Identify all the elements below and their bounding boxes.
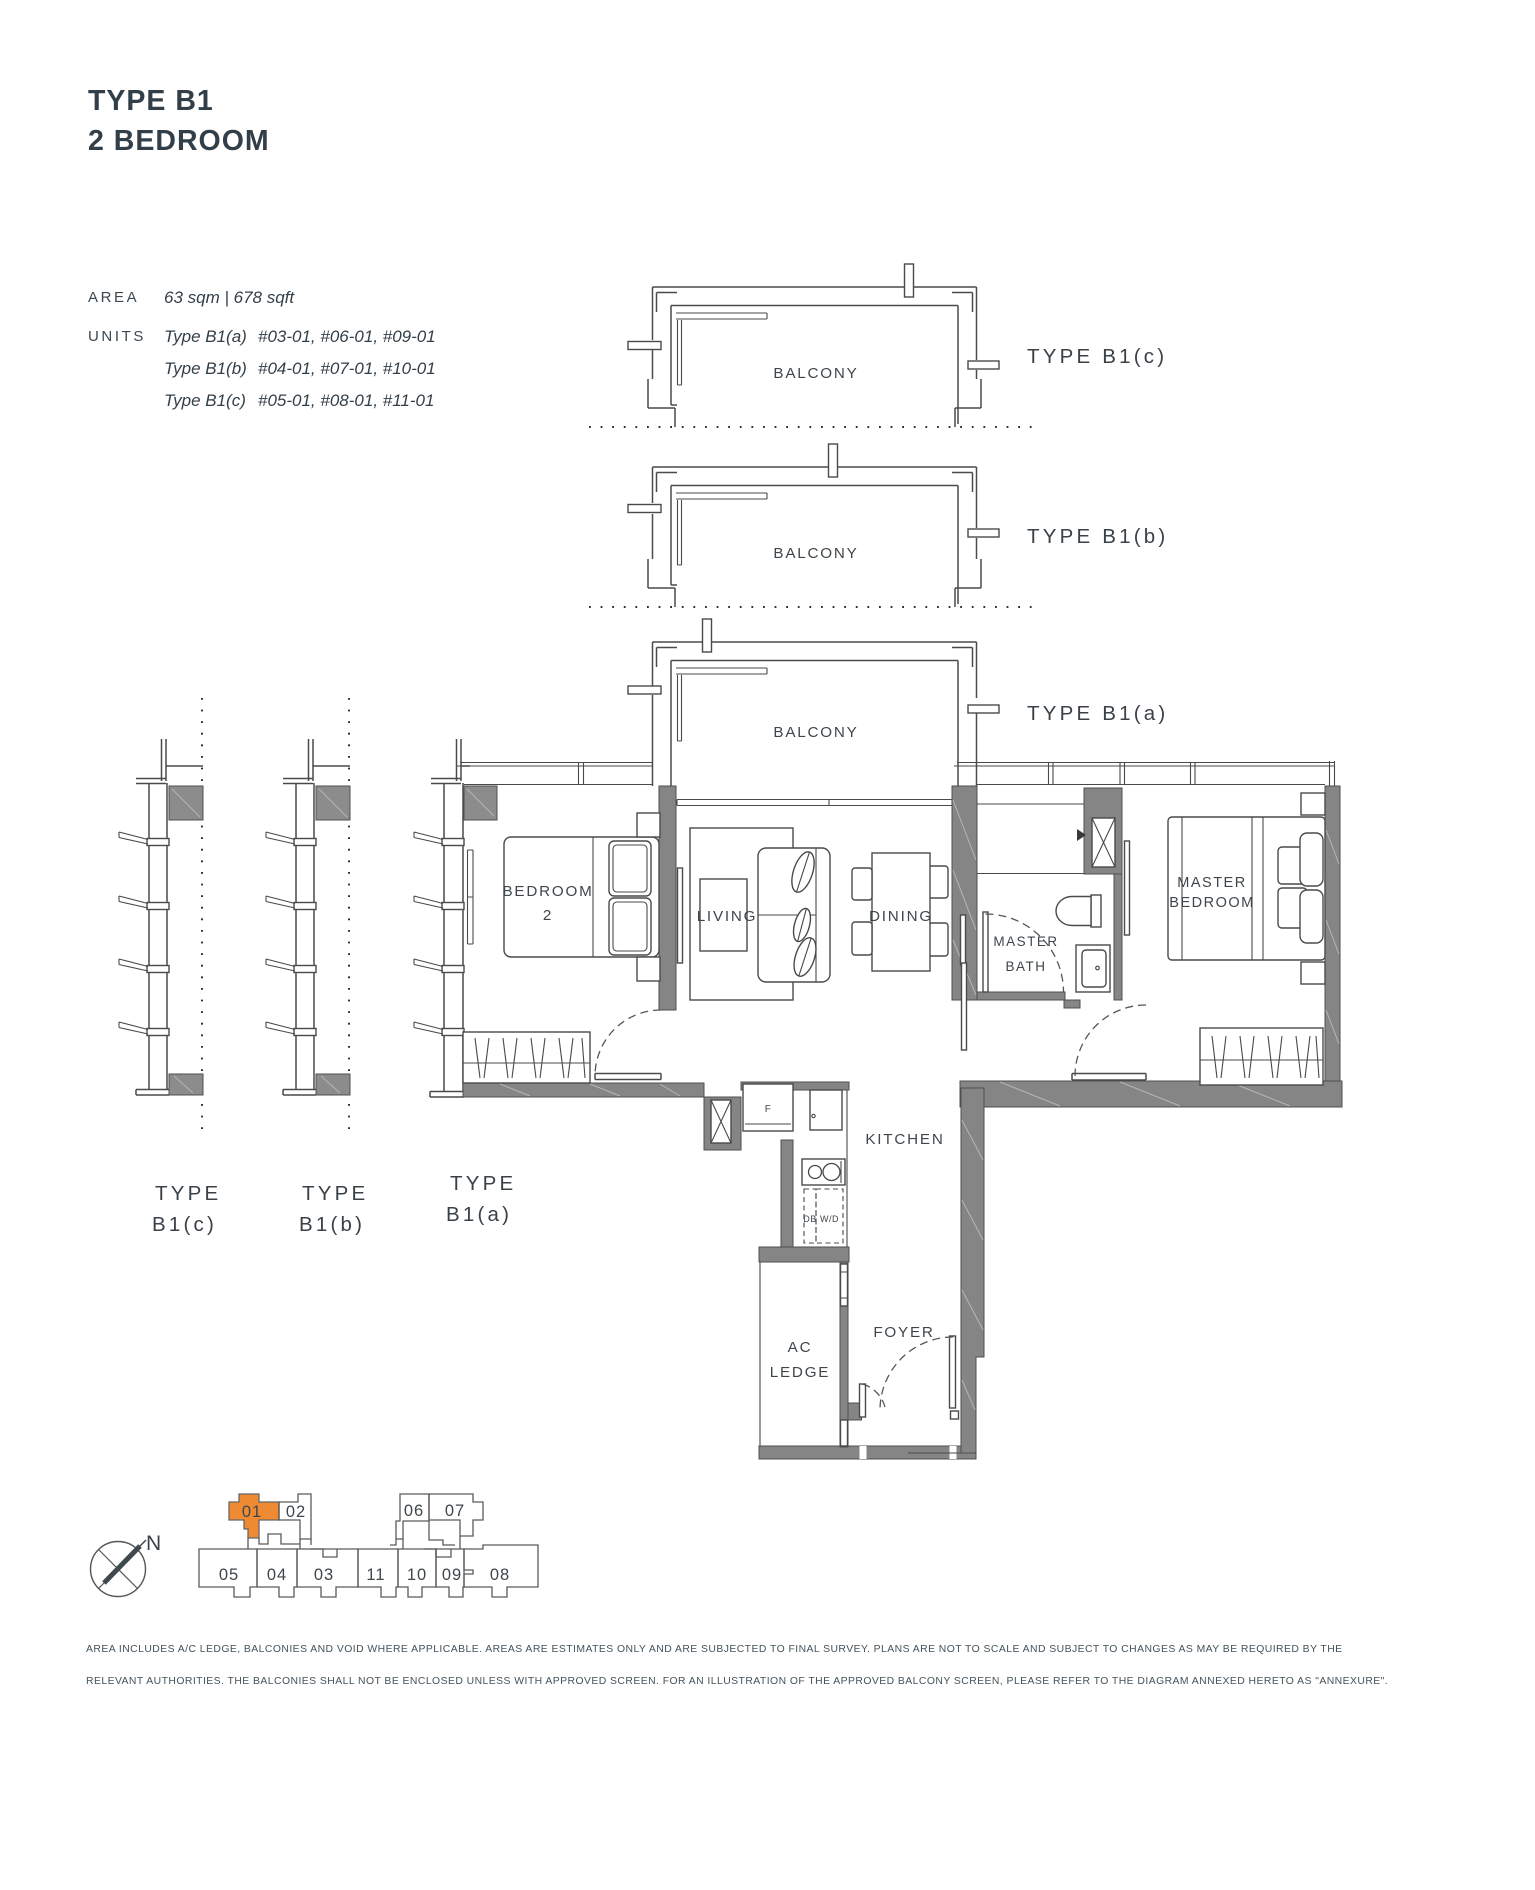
svg-text:TYPE: TYPE: [450, 1172, 516, 1195]
svg-text:63 sqm | 678 sqft: 63 sqm | 678 sqft: [164, 288, 295, 307]
svg-text:BEDROOM: BEDROOM: [502, 883, 593, 900]
svg-text:N: N: [146, 1532, 161, 1555]
svg-text:DB: DB: [803, 1214, 817, 1224]
svg-text:TYPE B1(c): TYPE B1(c): [1027, 345, 1167, 368]
svg-text:TYPE: TYPE: [155, 1182, 221, 1205]
svg-text:05: 05: [219, 1566, 239, 1584]
svg-text:TYPE B1(b): TYPE B1(b): [1027, 525, 1168, 548]
svg-text:TYPE B1: TYPE B1: [88, 85, 214, 117]
svg-text:RELEVANT AUTHORITIES. THE BALC: RELEVANT AUTHORITIES. THE BALCONIES SHAL…: [86, 1676, 1388, 1687]
svg-text:2 BEDROOM: 2 BEDROOM: [88, 125, 270, 157]
svg-text:Type B1(b): Type B1(b): [164, 359, 247, 378]
svg-text:MASTER: MASTER: [993, 934, 1058, 949]
svg-text:Type B1(c): Type B1(c): [164, 391, 246, 410]
svg-text:2: 2: [543, 907, 553, 924]
svg-text:BALCONY: BALCONY: [773, 545, 858, 562]
svg-text:11: 11: [366, 1566, 385, 1584]
svg-text:FOYER: FOYER: [873, 1324, 934, 1341]
svg-text:09: 09: [442, 1566, 462, 1584]
svg-text:BEDROOM: BEDROOM: [1169, 895, 1254, 911]
svg-text:10: 10: [407, 1566, 427, 1584]
svg-text:B1(a): B1(a): [446, 1203, 512, 1226]
svg-text:DINING: DINING: [869, 908, 933, 925]
svg-text:AC: AC: [788, 1339, 813, 1356]
svg-text:#04-01, #07-01, #10-01: #04-01, #07-01, #10-01: [258, 359, 436, 378]
svg-text:LIVING: LIVING: [697, 908, 758, 925]
svg-text:B1(c): B1(c): [152, 1213, 217, 1236]
svg-text:BATH: BATH: [1005, 959, 1046, 974]
svg-text:#05-01, #08-01, #11-01: #05-01, #08-01, #11-01: [258, 391, 434, 410]
svg-text:B1(b): B1(b): [299, 1213, 365, 1236]
svg-text:01: 01: [242, 1503, 262, 1521]
svg-text:KITCHEN: KITCHEN: [865, 1131, 944, 1148]
svg-text:W/D: W/D: [820, 1214, 839, 1224]
svg-text:UNITS: UNITS: [88, 328, 146, 345]
svg-text:03: 03: [314, 1566, 334, 1584]
svg-text:MASTER: MASTER: [1177, 875, 1246, 891]
svg-text:02: 02: [286, 1503, 306, 1521]
svg-text:04: 04: [267, 1566, 287, 1584]
svg-text:#03-01, #06-01, #09-01: #03-01, #06-01, #09-01: [258, 327, 436, 346]
svg-text:BALCONY: BALCONY: [773, 724, 858, 741]
svg-text:AREA INCLUDES A/C LEDGE, BALCO: AREA INCLUDES A/C LEDGE, BALCONIES AND V…: [86, 1644, 1343, 1655]
svg-text:08: 08: [490, 1566, 510, 1584]
svg-text:AREA: AREA: [88, 289, 139, 306]
svg-text:Type B1(a): Type B1(a): [164, 327, 247, 346]
svg-text:TYPE B1(a): TYPE B1(a): [1027, 702, 1168, 725]
svg-text:06: 06: [404, 1502, 424, 1520]
svg-text:F: F: [765, 1104, 772, 1115]
svg-text:BALCONY: BALCONY: [773, 365, 858, 382]
svg-text:LEDGE: LEDGE: [770, 1364, 831, 1381]
svg-text:07: 07: [445, 1502, 465, 1520]
svg-text:TYPE: TYPE: [302, 1182, 368, 1205]
